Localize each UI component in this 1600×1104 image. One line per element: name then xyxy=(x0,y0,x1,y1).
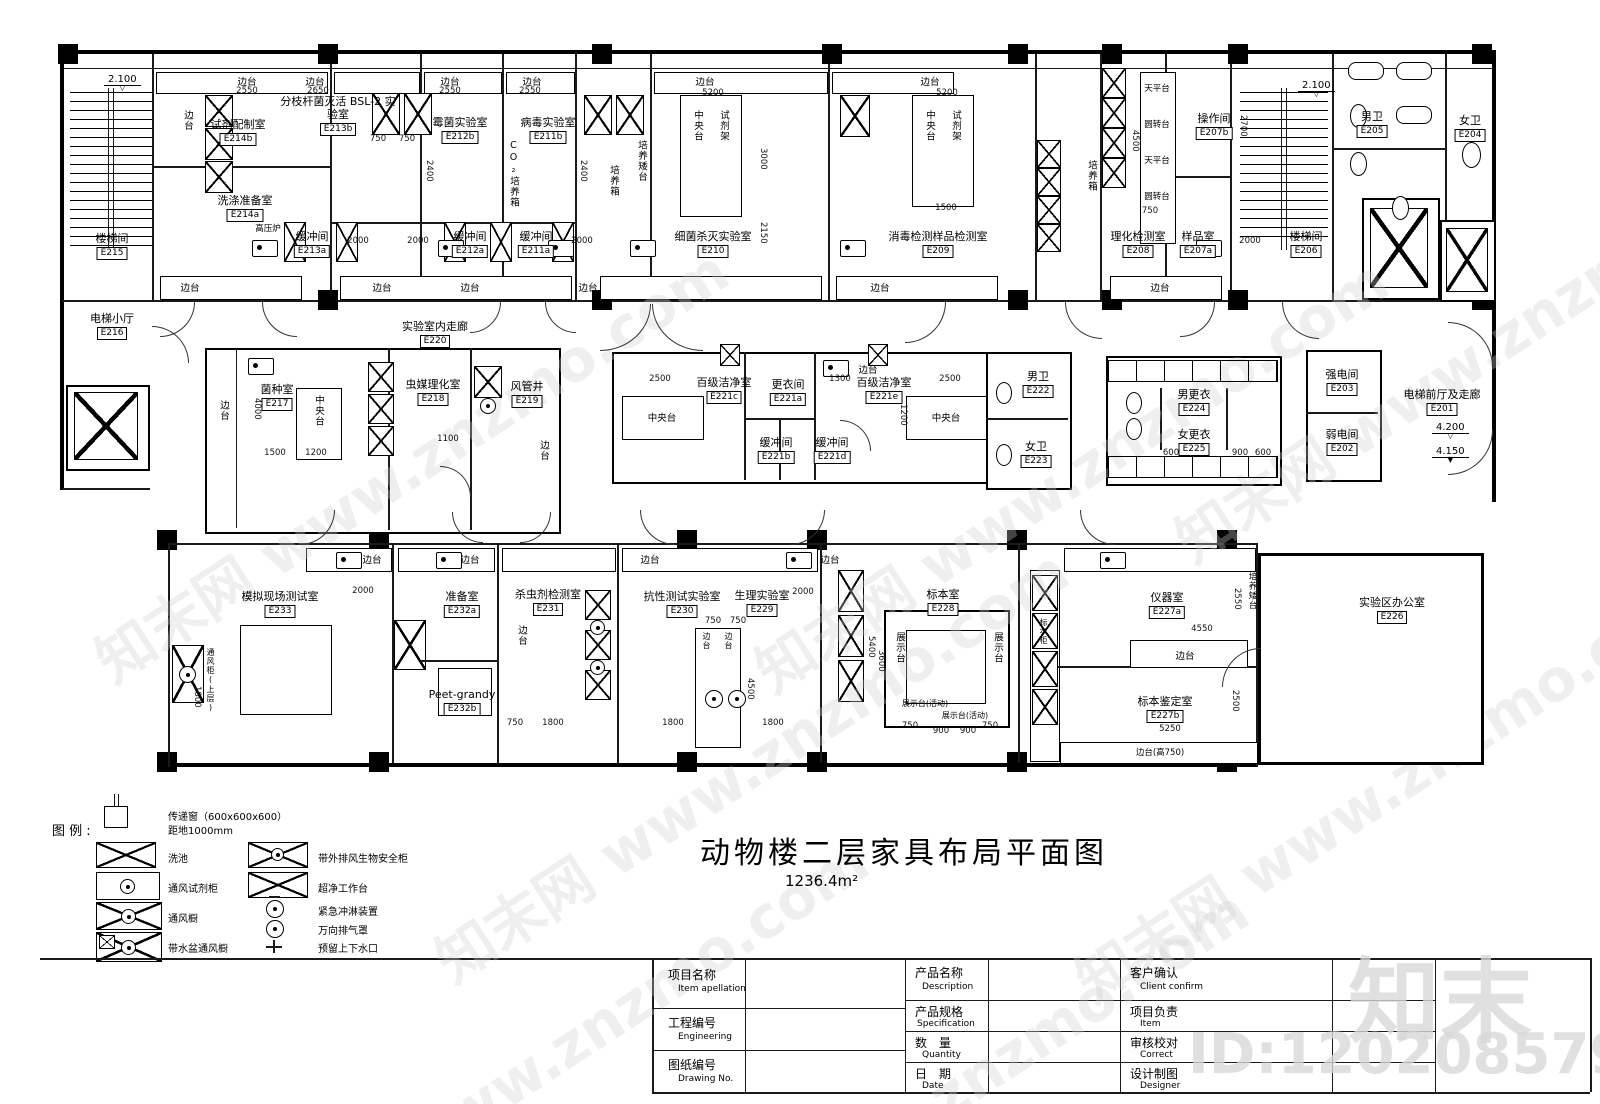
legend-circle xyxy=(121,940,136,955)
bench-label: 边台 xyxy=(536,440,550,461)
dimension: 1500 xyxy=(935,203,957,213)
room-name: 试剂配制室 xyxy=(211,118,266,131)
room-name: 仪器室 xyxy=(1150,591,1183,604)
partition xyxy=(470,348,472,530)
room-name: 男卫 xyxy=(1027,370,1049,383)
room-id: E221c xyxy=(706,391,742,404)
toilet xyxy=(996,382,1012,404)
legend-label: 带外排风生物安全柜 xyxy=(318,850,408,865)
room-label-e232a: 准备室E232a xyxy=(444,590,480,618)
toilet xyxy=(1126,392,1142,414)
room-label-e208: 理化检测室E208 xyxy=(1111,230,1166,258)
door-arc[interactable] xyxy=(262,302,297,337)
room-id: E203 xyxy=(1327,383,1358,396)
door-arc[interactable] xyxy=(1282,302,1319,339)
room-label-e226: 实验区办公室E226 xyxy=(1359,596,1425,624)
bench-label: 边台 xyxy=(870,280,889,294)
room-label-e212b: 霉菌实验室E212b xyxy=(433,116,488,144)
room-id: E223 xyxy=(1021,455,1052,468)
tb-label: 产品规格 xyxy=(915,1003,963,1020)
tb-label: 产品名称 xyxy=(915,964,963,981)
fan-symbol xyxy=(480,398,496,414)
biosafety-cabinet xyxy=(584,95,612,135)
room-name: 样品室 xyxy=(1181,230,1214,243)
room-name: 楼梯间 xyxy=(96,232,129,245)
titleblock-line xyxy=(905,1062,1435,1063)
reagent-rack-label: 试剂架 xyxy=(948,110,962,142)
room-label-e221c: 百级洁净室E221c xyxy=(697,376,752,404)
legend-shower-symbol xyxy=(266,900,284,918)
room-id: E214a xyxy=(227,209,263,222)
room-id: E221a xyxy=(770,393,806,406)
cabinet-symbol xyxy=(838,615,864,657)
exhaust-hood xyxy=(728,690,746,708)
room-id: E206 xyxy=(1291,245,1322,258)
room-name: 风管井 xyxy=(511,380,544,393)
cabinet-symbol xyxy=(368,362,394,392)
tb-label: 工程编号 xyxy=(668,1014,716,1031)
cabinet-symbol xyxy=(1032,651,1058,687)
room-name: 男卫 xyxy=(1361,110,1383,123)
legend-label: 传递窗（600x600x600） xyxy=(168,808,287,823)
biosafety-cabinet xyxy=(404,93,432,135)
display-label: 展示台(活动) xyxy=(902,698,948,709)
column xyxy=(1008,290,1028,310)
partition xyxy=(828,54,830,302)
room-id: E212b xyxy=(442,131,479,144)
tb-label: 审核校对 xyxy=(1130,1034,1178,1051)
bench xyxy=(1064,548,1256,572)
column xyxy=(1228,44,1248,64)
room-name: 菌种室 xyxy=(261,383,294,396)
legend-label-sub: 距地1000mm xyxy=(168,822,233,837)
legend-exhaust-symbol xyxy=(266,920,284,938)
dimension: 4550 xyxy=(1191,624,1213,634)
dimension: 2000 xyxy=(792,587,814,597)
room-name: 弱电间 xyxy=(1326,428,1359,441)
display-label: 展示台(活动) xyxy=(942,710,988,721)
low-bench-label: 培养矮台 xyxy=(634,140,648,182)
room-label-e213b: 分枝杆菌灭活 BSL-2 实验室E213b xyxy=(277,95,399,136)
door-arc[interactable] xyxy=(452,512,483,543)
room-label-e224: 男更衣E224 xyxy=(1178,388,1211,416)
room-name: 准备室 xyxy=(445,590,478,603)
dimension: 2500 xyxy=(1230,690,1240,712)
room-name: 电梯前厅及走廊 xyxy=(1404,388,1481,401)
tb-label-en: Quantity xyxy=(922,1050,961,1060)
door-arc[interactable] xyxy=(1448,322,1493,367)
room-name: 杀虫剂检测室 xyxy=(515,588,581,601)
door-arc[interactable] xyxy=(470,302,501,333)
tb-label-en: Engineering xyxy=(678,1032,732,1042)
dimension: 2400 xyxy=(578,160,588,182)
room-id: E222 xyxy=(1023,385,1054,398)
partition xyxy=(820,545,822,763)
dimension: 3600 xyxy=(876,650,886,672)
legend-circle xyxy=(271,848,284,861)
room-label-e203: 强电间E203 xyxy=(1326,368,1359,396)
dimension: 1800 xyxy=(662,718,684,728)
duct-fan xyxy=(474,366,502,398)
legend-symbol-line xyxy=(118,794,119,806)
column xyxy=(369,752,389,772)
cabinet-symbol xyxy=(368,426,394,456)
dimension: 900 xyxy=(960,726,976,736)
drawing-title: 动物楼二层家具布局平面图 xyxy=(700,828,1108,872)
room-name: 女更衣 xyxy=(1178,428,1211,441)
wall-line xyxy=(62,68,1496,69)
room-id: E216 xyxy=(97,327,128,340)
toilet-fixture xyxy=(1348,62,1384,80)
bench-label: 边台 xyxy=(372,280,391,294)
locker-row xyxy=(1108,456,1278,478)
bench-label: 边台 xyxy=(723,632,734,650)
toilet xyxy=(996,444,1012,466)
room-id: E221d xyxy=(814,451,851,464)
titleblock-border xyxy=(652,958,1590,960)
bench-line xyxy=(236,350,237,528)
dimension: 5400 xyxy=(866,636,876,658)
cabinet-symbol xyxy=(1037,224,1061,252)
dimension: 750 xyxy=(730,616,746,626)
legend-label: 洗池 xyxy=(168,850,188,865)
tb-label: 图纸编号 xyxy=(668,1056,716,1073)
wall-line xyxy=(168,543,1258,545)
bench-label: 边台 xyxy=(578,280,597,294)
dimension: 2550 xyxy=(1232,588,1242,610)
legend-corner-box xyxy=(99,935,115,949)
bench xyxy=(600,276,822,300)
dimension: 5250 xyxy=(1159,724,1181,734)
balance-bench-label: 天平台 xyxy=(1144,154,1170,166)
room-id: E210 xyxy=(698,245,729,258)
room-id: E209 xyxy=(923,245,954,258)
legend-circle xyxy=(121,909,136,924)
door-arc[interactable] xyxy=(1080,510,1115,545)
legend-symbol-line xyxy=(114,794,115,806)
bench-label: 边台 xyxy=(362,552,381,566)
room-id: E212a xyxy=(452,245,488,258)
dimension: 1800 xyxy=(762,718,784,728)
tb-label-en: Correct xyxy=(1140,1050,1173,1060)
column xyxy=(677,530,697,550)
column xyxy=(1008,44,1028,64)
room-name: 女卫 xyxy=(1025,440,1047,453)
elevator-car xyxy=(1370,208,1428,288)
room-id: E232a xyxy=(444,605,480,618)
room-label-e214b: 试剂配制室E214b xyxy=(211,118,266,146)
sink-symbol xyxy=(252,240,278,257)
dimension: 2000 xyxy=(347,236,369,246)
dimension: 2400 xyxy=(424,160,434,182)
bench-label: 边台 xyxy=(514,625,528,646)
room-id: E227a xyxy=(1149,606,1185,619)
wall xyxy=(60,50,64,490)
sink-symbol xyxy=(1100,552,1126,569)
column xyxy=(318,290,338,310)
dimension: 2000 xyxy=(1239,236,1261,246)
room-label-e201: 电梯前厅及走廊E201 xyxy=(1404,388,1481,416)
level-mark: 2.100▽ xyxy=(104,74,141,91)
room-label-e230: 抗性测试实验室E230 xyxy=(644,590,721,618)
room-id: E231 xyxy=(533,603,564,616)
titleblock-border xyxy=(1590,958,1592,1092)
room-id: E219 xyxy=(512,395,543,408)
sink-symbol xyxy=(630,240,656,257)
door-arc[interactable] xyxy=(300,510,335,545)
stair-rail xyxy=(108,88,109,256)
toilet xyxy=(1126,418,1142,440)
room-id: E205 xyxy=(1357,125,1388,138)
room-name: 百级洁净室 xyxy=(697,376,752,389)
legend-symbol-line xyxy=(269,896,280,898)
room-name: 缓冲间 xyxy=(759,436,792,449)
room-id: E202 xyxy=(1327,443,1358,456)
room-id: E225 xyxy=(1179,443,1210,456)
reagent-rack-label: 试剂架 xyxy=(716,110,730,142)
room-id: E228 xyxy=(928,603,959,616)
room-id: E230 xyxy=(667,605,698,618)
room-name: 女卫 xyxy=(1459,114,1481,127)
tb-label-en: Item xyxy=(1140,1019,1161,1029)
legend-circle xyxy=(120,879,135,894)
cabinet-symbol xyxy=(205,161,233,193)
column xyxy=(1228,290,1248,310)
room-label-e212a: 缓冲间E212a xyxy=(452,230,488,258)
room-name: 电梯小厅 xyxy=(90,312,134,325)
room-label-e204: 女卫E204 xyxy=(1455,114,1486,142)
bench-label: 边台 xyxy=(180,280,199,294)
titleblock-line xyxy=(1435,958,1436,1092)
tb-label-en: Designer xyxy=(1140,1081,1180,1091)
room-label-e205: 男卫E205 xyxy=(1357,110,1388,138)
column xyxy=(157,530,177,550)
wall xyxy=(62,50,1496,54)
titleblock-line xyxy=(905,1031,1435,1032)
room-label-e202: 弱电间E202 xyxy=(1326,428,1359,456)
legend-label: 通风试剂柜 xyxy=(168,880,218,895)
room-label-e217: 菌种室E217 xyxy=(261,383,294,411)
room-name: 实验区办公室 xyxy=(1359,596,1425,609)
bench-label: 边台 xyxy=(460,280,479,294)
biosafety-cabinet xyxy=(840,95,870,137)
dimension: 1200 xyxy=(898,404,908,426)
wall-line xyxy=(168,543,170,767)
room-label-e227b: 标本鉴定室E227b xyxy=(1138,695,1193,723)
legend-label: 预留上下水口 xyxy=(318,940,378,955)
autoclave-label: 高压炉 xyxy=(255,222,281,234)
room-label-e206: 楼梯间E206 xyxy=(1290,230,1323,258)
room-id: E233 xyxy=(265,605,296,618)
drawing-sheet: 知末网 www.znzmo.com 知末网 www.znzmo.com 知末网 … xyxy=(0,0,1600,1104)
bench-label: 边台 xyxy=(460,552,479,566)
dimension: 1800 xyxy=(542,718,564,728)
dimension: 2550 xyxy=(519,86,541,96)
room-label-e207a: 样品室E207a xyxy=(1180,230,1216,258)
titleblock-line xyxy=(905,1000,1435,1001)
sink-symbol xyxy=(248,358,274,375)
partition xyxy=(152,166,332,168)
display-label: 展示台 xyxy=(990,632,1004,664)
elevator-car xyxy=(74,392,138,460)
bench-label: 边台 xyxy=(1150,280,1169,294)
dimension: 2000 xyxy=(571,236,593,246)
watermark-brand: 知末 xyxy=(1348,928,1532,1061)
fan-symbol xyxy=(590,660,605,675)
room-label-e221b: 缓冲间E221b xyxy=(758,436,795,464)
dimension: 750 xyxy=(982,721,998,731)
door-arc[interactable] xyxy=(1180,302,1215,337)
cabinet-symbol xyxy=(1037,168,1061,196)
room-label-e211a: 缓冲间E211a xyxy=(518,230,554,258)
bench-label: 边台 xyxy=(180,110,194,131)
cabinet-symbol xyxy=(585,590,611,620)
room-id: E207b xyxy=(1196,127,1233,140)
column xyxy=(1217,530,1237,550)
partition xyxy=(1306,412,1378,414)
door-arc[interactable] xyxy=(545,302,576,333)
room-name: 百级洁净室 xyxy=(857,376,912,389)
door-arc[interactable] xyxy=(905,302,946,343)
titleblock-line xyxy=(988,958,989,1092)
bench-label: 边台 xyxy=(858,362,877,376)
incubator-label: 培养箱 xyxy=(606,165,620,197)
cabinet-symbol xyxy=(720,344,740,366)
room-id: E214b xyxy=(220,133,257,146)
tb-label: 日 期 xyxy=(915,1065,951,1082)
tb-label-en: Date xyxy=(922,1081,944,1091)
room-label-e220: 实验室内走廊E220 xyxy=(402,320,468,348)
room-name: 更衣间 xyxy=(771,378,804,391)
room-id: E211b xyxy=(530,131,567,144)
cabinet-symbol xyxy=(1102,98,1126,128)
partition xyxy=(497,545,499,763)
bench-label: 边台 xyxy=(695,74,714,88)
room-name: 标本室 xyxy=(927,588,960,601)
legend-clean-bench-symbol xyxy=(248,872,308,898)
partition xyxy=(617,545,619,763)
bench-label: 边台 xyxy=(701,632,712,650)
partition xyxy=(330,54,332,302)
legend-sink-symbol xyxy=(96,842,156,868)
column xyxy=(1102,44,1122,64)
tb-label-en: Client confirm xyxy=(1140,982,1203,992)
dimension: 600 xyxy=(1255,448,1271,458)
cabinet-symbol xyxy=(1037,140,1061,168)
dimension: 2150 xyxy=(758,222,768,244)
door-arc[interactable] xyxy=(652,304,703,351)
dimension: 2500 xyxy=(649,374,671,384)
door-arc[interactable] xyxy=(1065,302,1102,339)
legend-label: 万向排气罩 xyxy=(318,922,368,937)
room-name: 楼梯间 xyxy=(1290,230,1323,243)
room-id: E221b xyxy=(758,451,795,464)
room-label-e231: 杀虫剂检测室E231 xyxy=(515,588,581,616)
tb-label-en: Description xyxy=(922,982,973,992)
toilet xyxy=(1350,152,1367,176)
central-bench-label: 中央台 xyxy=(932,410,961,424)
legend-water-symbol xyxy=(273,940,275,953)
room-name: 理化检测室 xyxy=(1111,230,1166,243)
partition xyxy=(650,54,652,302)
titleblock-line xyxy=(1332,958,1333,1092)
door-arc[interactable] xyxy=(520,512,551,543)
door-arc[interactable] xyxy=(600,304,651,351)
room-label-e210: 细菌杀灭实验室E210 xyxy=(675,230,752,258)
room-id: E221e xyxy=(866,391,902,404)
stair-rail xyxy=(1281,88,1282,250)
room-label-e215: 楼梯间E215 xyxy=(96,232,129,260)
room-name: 男更衣 xyxy=(1178,388,1211,401)
specimen-cabinet-label: 标本柜 xyxy=(1038,618,1049,645)
legend-title: 图 例 : xyxy=(52,820,91,839)
cabinet-symbol xyxy=(490,222,512,262)
turntable-label: 圆转台 xyxy=(1144,118,1170,130)
tb-label-en: Drawing No. xyxy=(678,1074,733,1084)
room-name: 缓冲间 xyxy=(815,436,848,449)
room-name: 病毒实验室 xyxy=(521,116,576,129)
fume-cupboard-label: 通风柜(上层) xyxy=(205,648,216,713)
room-name: 强电间 xyxy=(1326,368,1359,381)
biosafety-cabinet xyxy=(616,95,644,135)
level-mark: 2.100▽ xyxy=(1298,80,1335,97)
bench xyxy=(836,276,998,300)
room-name: 细菌杀灭实验室 xyxy=(675,230,752,243)
sink-symbol xyxy=(436,552,462,569)
legend-label: 带水盆通风橱 xyxy=(168,940,228,955)
room-name: 缓冲间 xyxy=(519,230,552,243)
stair-rail xyxy=(113,88,114,256)
partition xyxy=(1230,54,1232,302)
room-name: 模拟现场测试室 xyxy=(242,590,319,603)
dimension: 750 xyxy=(1142,206,1158,216)
door-arc[interactable] xyxy=(152,326,189,363)
room-label-e211b: 病毒实验室E211b xyxy=(521,116,576,144)
room-name: 抗性测试实验室 xyxy=(644,590,721,603)
fan-symbol xyxy=(179,666,196,683)
room-name: 缓冲间 xyxy=(295,230,328,243)
central-bench-label: 中央台 xyxy=(311,395,325,427)
room-id: E232b xyxy=(444,703,481,716)
co2-incubator-label: CO₂培养箱 xyxy=(506,140,520,208)
display-island xyxy=(906,630,986,704)
stair-rail xyxy=(1286,88,1287,250)
elevator-car xyxy=(1446,228,1488,292)
dimension: 5200 xyxy=(936,88,958,98)
office-room xyxy=(1258,553,1484,765)
column xyxy=(1472,44,1492,64)
bench xyxy=(502,548,616,572)
room-label-e209: 消毒检测样品检测室E209 xyxy=(889,230,988,258)
room-label-e225: 女更衣E225 xyxy=(1178,428,1211,456)
bench-label: 边台 xyxy=(920,74,939,88)
partition xyxy=(1018,545,1020,763)
test-table xyxy=(240,625,332,715)
room-label-e218: 虫媒理化室E218 xyxy=(406,378,461,406)
cabinet-symbol xyxy=(1037,196,1061,224)
room-id: E220 xyxy=(420,335,451,348)
door-arc[interactable] xyxy=(640,510,675,545)
dimension: 3000 xyxy=(758,148,768,170)
titleblock-line xyxy=(905,958,906,1092)
room-name: 虫媒理化室 xyxy=(406,378,461,391)
room-label-e213a: 缓冲间E213a xyxy=(294,230,330,258)
titleblock-line xyxy=(745,958,746,1092)
room-name: 生理实验室 xyxy=(735,589,790,602)
legend-pass-window-symbol xyxy=(104,806,128,828)
room-name: 标本鉴定室 xyxy=(1138,695,1193,708)
legend-label: 通风橱 xyxy=(168,910,198,925)
